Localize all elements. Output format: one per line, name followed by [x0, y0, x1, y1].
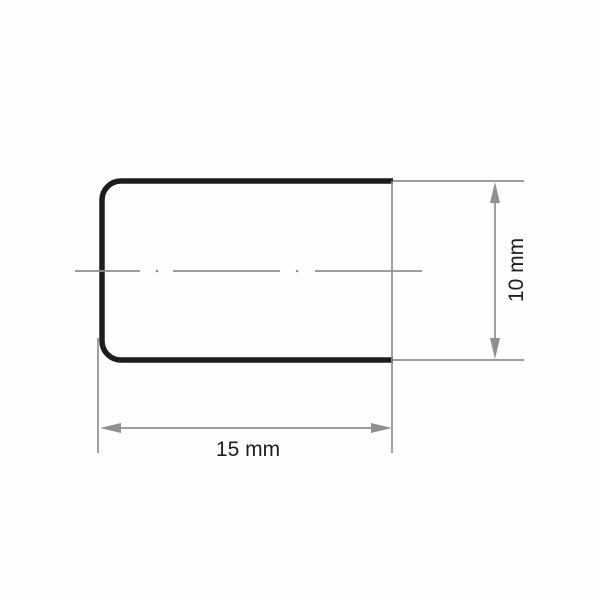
- centerline-dot: [156, 270, 159, 273]
- arrowhead-left-icon: [100, 423, 121, 433]
- width-dimension-label: 15 mm: [216, 438, 280, 461]
- drawing-canvas: 10 mm 15 mm: [0, 0, 600, 600]
- width-dimension: 15 mm: [100, 423, 392, 461]
- height-dimension: 10 mm: [490, 182, 528, 359]
- technical-drawing: 10 mm 15 mm: [0, 0, 600, 600]
- centerline-dot: [296, 270, 299, 273]
- arrowhead-up-icon: [490, 182, 500, 203]
- arrowhead-right-icon: [371, 423, 392, 433]
- arrowhead-down-icon: [490, 338, 500, 359]
- height-dimension-label: 10 mm: [505, 238, 528, 302]
